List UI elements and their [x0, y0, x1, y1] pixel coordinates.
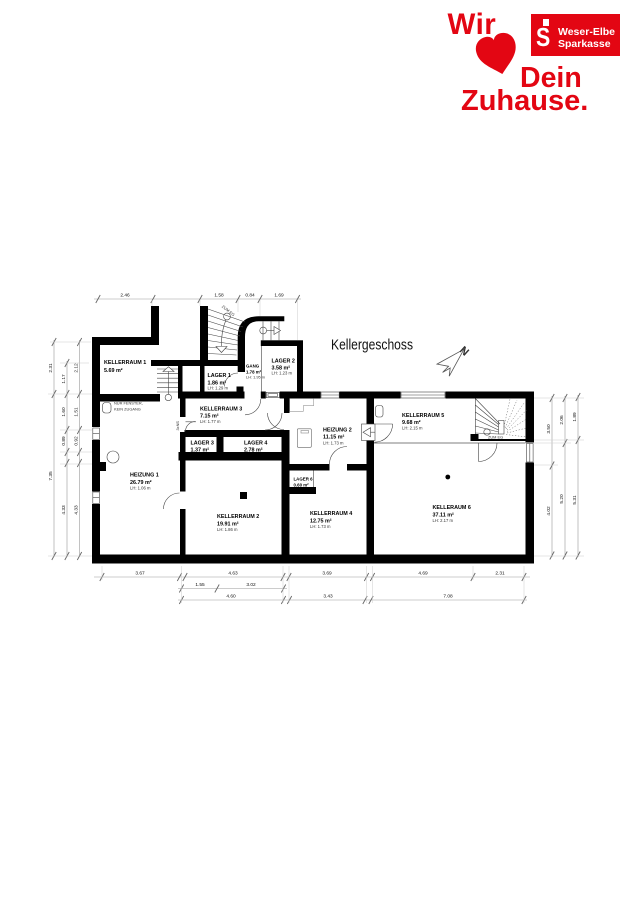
- svg-text:LH: 1.86 m: LH: 1.86 m: [217, 527, 238, 532]
- svg-text:4.60: 4.60: [226, 594, 236, 600]
- svg-text:GANG: GANG: [246, 364, 260, 369]
- svg-text:7.08: 7.08: [443, 594, 453, 600]
- svg-text:LH: 1.77 m: LH: 1.77 m: [200, 419, 221, 424]
- svg-text:KELLERRAUM 4: KELLERRAUM 4: [310, 511, 352, 517]
- svg-text:LAGER 2: LAGER 2: [272, 359, 295, 365]
- svg-text:2.31: 2.31: [495, 571, 505, 577]
- svg-text:ZUM EG: ZUM EG: [488, 435, 503, 440]
- svg-text:LAGER 4: LAGER 4: [244, 441, 267, 447]
- svg-text:4.02: 4.02: [546, 506, 552, 516]
- svg-text:3.67: 3.67: [135, 571, 145, 577]
- svg-text:4.63: 4.63: [228, 571, 238, 577]
- svg-text:KELLERRAUM 5: KELLERRAUM 5: [402, 413, 444, 419]
- svg-text:4.33: 4.33: [74, 505, 80, 515]
- svg-text:LH: 1.23 m: LH: 1.23 m: [272, 371, 293, 376]
- svg-text:LH: 1.06 m: LH: 1.06 m: [130, 486, 151, 491]
- svg-text:HEIZUNG 1: HEIZUNG 1: [130, 473, 159, 479]
- svg-text:LH: 2.15 m: LH: 2.15 m: [402, 426, 423, 431]
- svg-text:HEIZUNG 2: HEIZUNG 2: [323, 428, 352, 434]
- svg-text:3.02: 3.02: [246, 582, 256, 588]
- svg-text:3.43: 3.43: [323, 594, 333, 600]
- svg-text:KELLERAUM 6: KELLERAUM 6: [433, 505, 471, 511]
- svg-text:1.60: 1.60: [61, 407, 67, 417]
- svg-text:7.35: 7.35: [48, 471, 54, 481]
- svg-text:LAGER 6: LAGER 6: [294, 477, 314, 482]
- svg-text:KEIN ZUGANG: KEIN ZUGANG: [114, 407, 141, 412]
- svg-text:3.69: 3.69: [322, 571, 332, 577]
- svg-text:1.69: 1.69: [274, 293, 284, 299]
- svg-text:1.58: 1.58: [214, 293, 224, 299]
- svg-text:KELLERRAUM 1: KELLERRAUM 1: [104, 360, 146, 366]
- svg-text:LH: 1.73 m: LH: 1.73 m: [323, 441, 344, 446]
- svg-text:1.55: 1.55: [195, 582, 205, 588]
- svg-text:2.46: 2.46: [120, 293, 130, 299]
- svg-text:2.12: 2.12: [74, 363, 80, 373]
- svg-text:3xNS: 3xNS: [175, 421, 180, 431]
- svg-text:LH: 2.17 m: LH: 2.17 m: [433, 518, 454, 523]
- svg-text:0.89: 0.89: [61, 436, 67, 446]
- svg-text:LH: 1.29 m: LH: 1.29 m: [208, 386, 229, 391]
- svg-text:3.50: 3.50: [546, 424, 552, 434]
- svg-text:2.06: 2.06: [559, 415, 565, 425]
- svg-text:Kellergeschoss: Kellergeschoss: [331, 338, 413, 354]
- svg-text:0.92: 0.92: [74, 436, 80, 446]
- svg-text:LH: 1.73 m: LH: 1.73 m: [310, 524, 331, 529]
- svg-text:1.37 m²: 1.37 m²: [191, 448, 210, 454]
- svg-text:ZUM EG: ZUM EG: [221, 304, 236, 317]
- svg-text:5.31: 5.31: [572, 495, 578, 505]
- svg-text:1.17: 1.17: [61, 374, 67, 384]
- svg-text:2.31: 2.31: [48, 363, 54, 373]
- svg-text:0.84: 0.84: [245, 293, 255, 299]
- svg-text:NUR FENSTER,: NUR FENSTER,: [114, 401, 143, 406]
- svg-text:4.33: 4.33: [61, 505, 67, 515]
- svg-text:LAGER 3: LAGER 3: [191, 441, 214, 447]
- svg-text:1.89: 1.89: [572, 412, 578, 422]
- svg-text:KELLERRAUM 3: KELLERRAUM 3: [200, 407, 242, 413]
- svg-text:5.69 m²: 5.69 m²: [104, 368, 123, 374]
- svg-text:LAGER 1: LAGER 1: [208, 373, 231, 379]
- svg-text:0.60 m²: 0.60 m²: [294, 483, 310, 488]
- svg-text:5.20: 5.20: [559, 494, 565, 504]
- svg-text:2.78 m²: 2.78 m²: [244, 448, 263, 454]
- svg-text:KELLERRAUM 2: KELLERRAUM 2: [217, 514, 259, 520]
- svg-text:4.69: 4.69: [418, 571, 428, 577]
- svg-text:1.51: 1.51: [74, 407, 80, 417]
- svg-text:LH: 1.95 m: LH: 1.95 m: [246, 375, 265, 380]
